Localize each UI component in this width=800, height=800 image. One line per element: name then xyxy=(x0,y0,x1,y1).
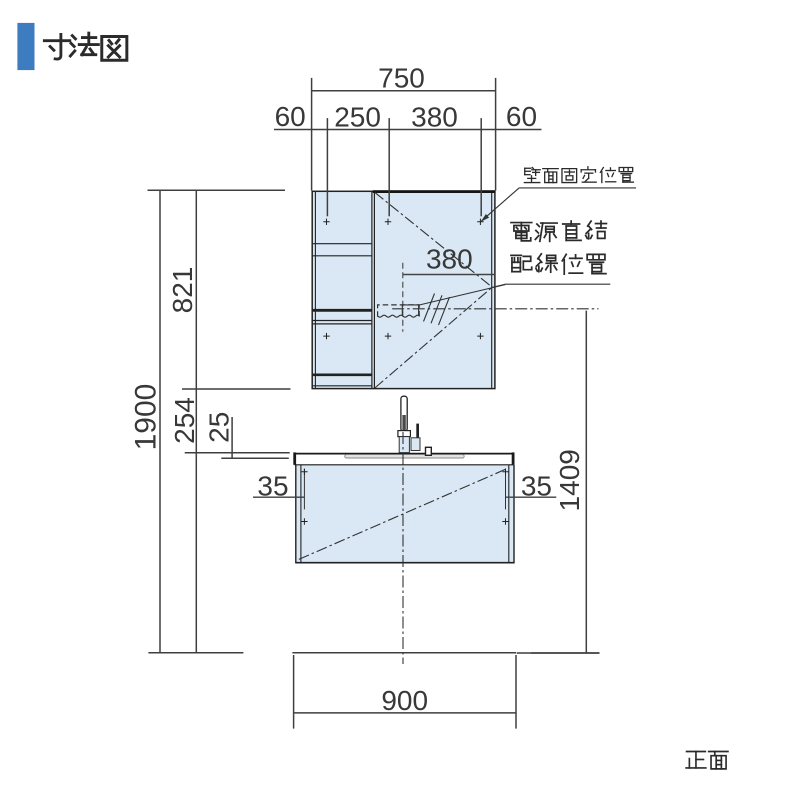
svg-text:25: 25 xyxy=(204,412,235,443)
svg-text:60: 60 xyxy=(506,101,537,132)
svg-text:380: 380 xyxy=(411,102,458,133)
svg-text:60: 60 xyxy=(275,101,306,132)
svg-text:380: 380 xyxy=(426,244,473,275)
svg-text:1900: 1900 xyxy=(130,384,163,451)
svg-text:35: 35 xyxy=(257,470,288,501)
svg-text:254: 254 xyxy=(169,397,200,444)
svg-text:821: 821 xyxy=(167,267,198,314)
svg-text:250: 250 xyxy=(334,102,381,133)
svg-text:750: 750 xyxy=(378,63,425,94)
svg-text:35: 35 xyxy=(521,470,552,501)
svg-text:1409: 1409 xyxy=(554,449,585,511)
svg-text:900: 900 xyxy=(381,685,428,716)
